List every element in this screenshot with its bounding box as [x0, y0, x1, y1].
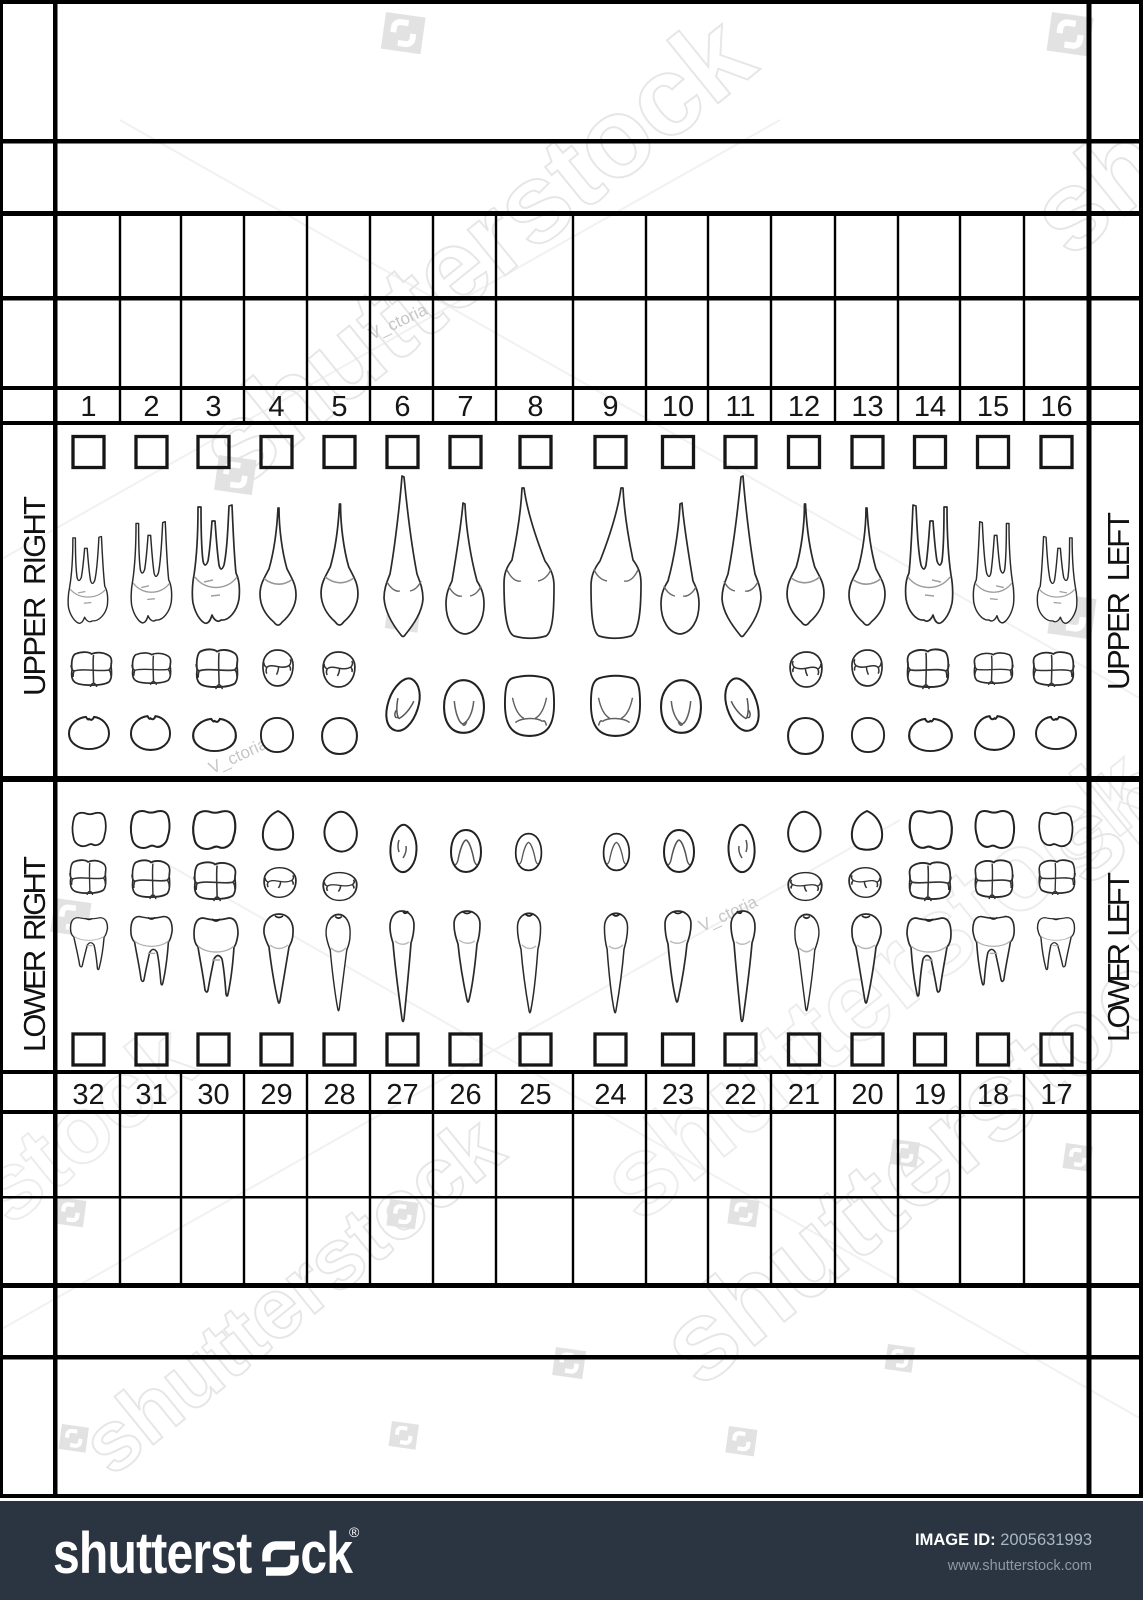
- svg-text:32: 32: [72, 1079, 104, 1111]
- svg-text:LOWER RIGHT: LOWER RIGHT: [17, 856, 52, 1052]
- svg-text:4: 4: [268, 391, 284, 423]
- svg-text:16: 16: [1040, 391, 1072, 423]
- svg-text:13: 13: [851, 391, 883, 423]
- svg-text:26: 26: [449, 1079, 481, 1111]
- svg-text:UPPER RIGHT: UPPER RIGHT: [17, 496, 52, 696]
- svg-text:21: 21: [788, 1079, 820, 1111]
- svg-text:®: ®: [349, 1524, 360, 1540]
- svg-text:shutterst: shutterst: [53, 1522, 252, 1586]
- svg-text:10: 10: [662, 391, 694, 423]
- svg-text:24: 24: [594, 1079, 626, 1111]
- svg-text:5: 5: [331, 391, 347, 423]
- svg-text:LOWER LEFT: LOWER LEFT: [1101, 872, 1136, 1042]
- svg-text:27: 27: [386, 1079, 418, 1111]
- svg-text:15: 15: [977, 391, 1009, 423]
- svg-text:IMAGE ID: 2005631993: IMAGE ID: 2005631993: [915, 1531, 1092, 1549]
- svg-text:14: 14: [914, 391, 946, 423]
- svg-text:18: 18: [977, 1079, 1009, 1111]
- svg-text:30: 30: [197, 1079, 229, 1111]
- svg-text:20: 20: [851, 1079, 883, 1111]
- svg-text:3: 3: [205, 391, 221, 423]
- svg-text:2: 2: [143, 391, 159, 423]
- svg-text:UPPER LEFT: UPPER LEFT: [1101, 512, 1136, 690]
- svg-text:11: 11: [725, 391, 755, 423]
- svg-text:ck: ck: [300, 1522, 353, 1586]
- svg-text:9: 9: [602, 391, 618, 423]
- svg-text:28: 28: [323, 1079, 355, 1111]
- svg-text:12: 12: [788, 391, 820, 423]
- svg-text:31: 31: [135, 1079, 167, 1111]
- svg-text:1: 1: [80, 391, 96, 423]
- svg-text:17: 17: [1040, 1079, 1072, 1111]
- svg-text:22: 22: [724, 1079, 756, 1111]
- svg-text:www.shutterstock.com: www.shutterstock.com: [947, 1558, 1092, 1574]
- svg-text:29: 29: [260, 1079, 292, 1111]
- svg-text:19: 19: [914, 1079, 946, 1111]
- svg-text:25: 25: [519, 1079, 551, 1111]
- svg-text:6: 6: [394, 391, 410, 423]
- svg-text:23: 23: [662, 1079, 694, 1111]
- svg-text:7: 7: [457, 391, 473, 423]
- svg-text:8: 8: [527, 391, 543, 423]
